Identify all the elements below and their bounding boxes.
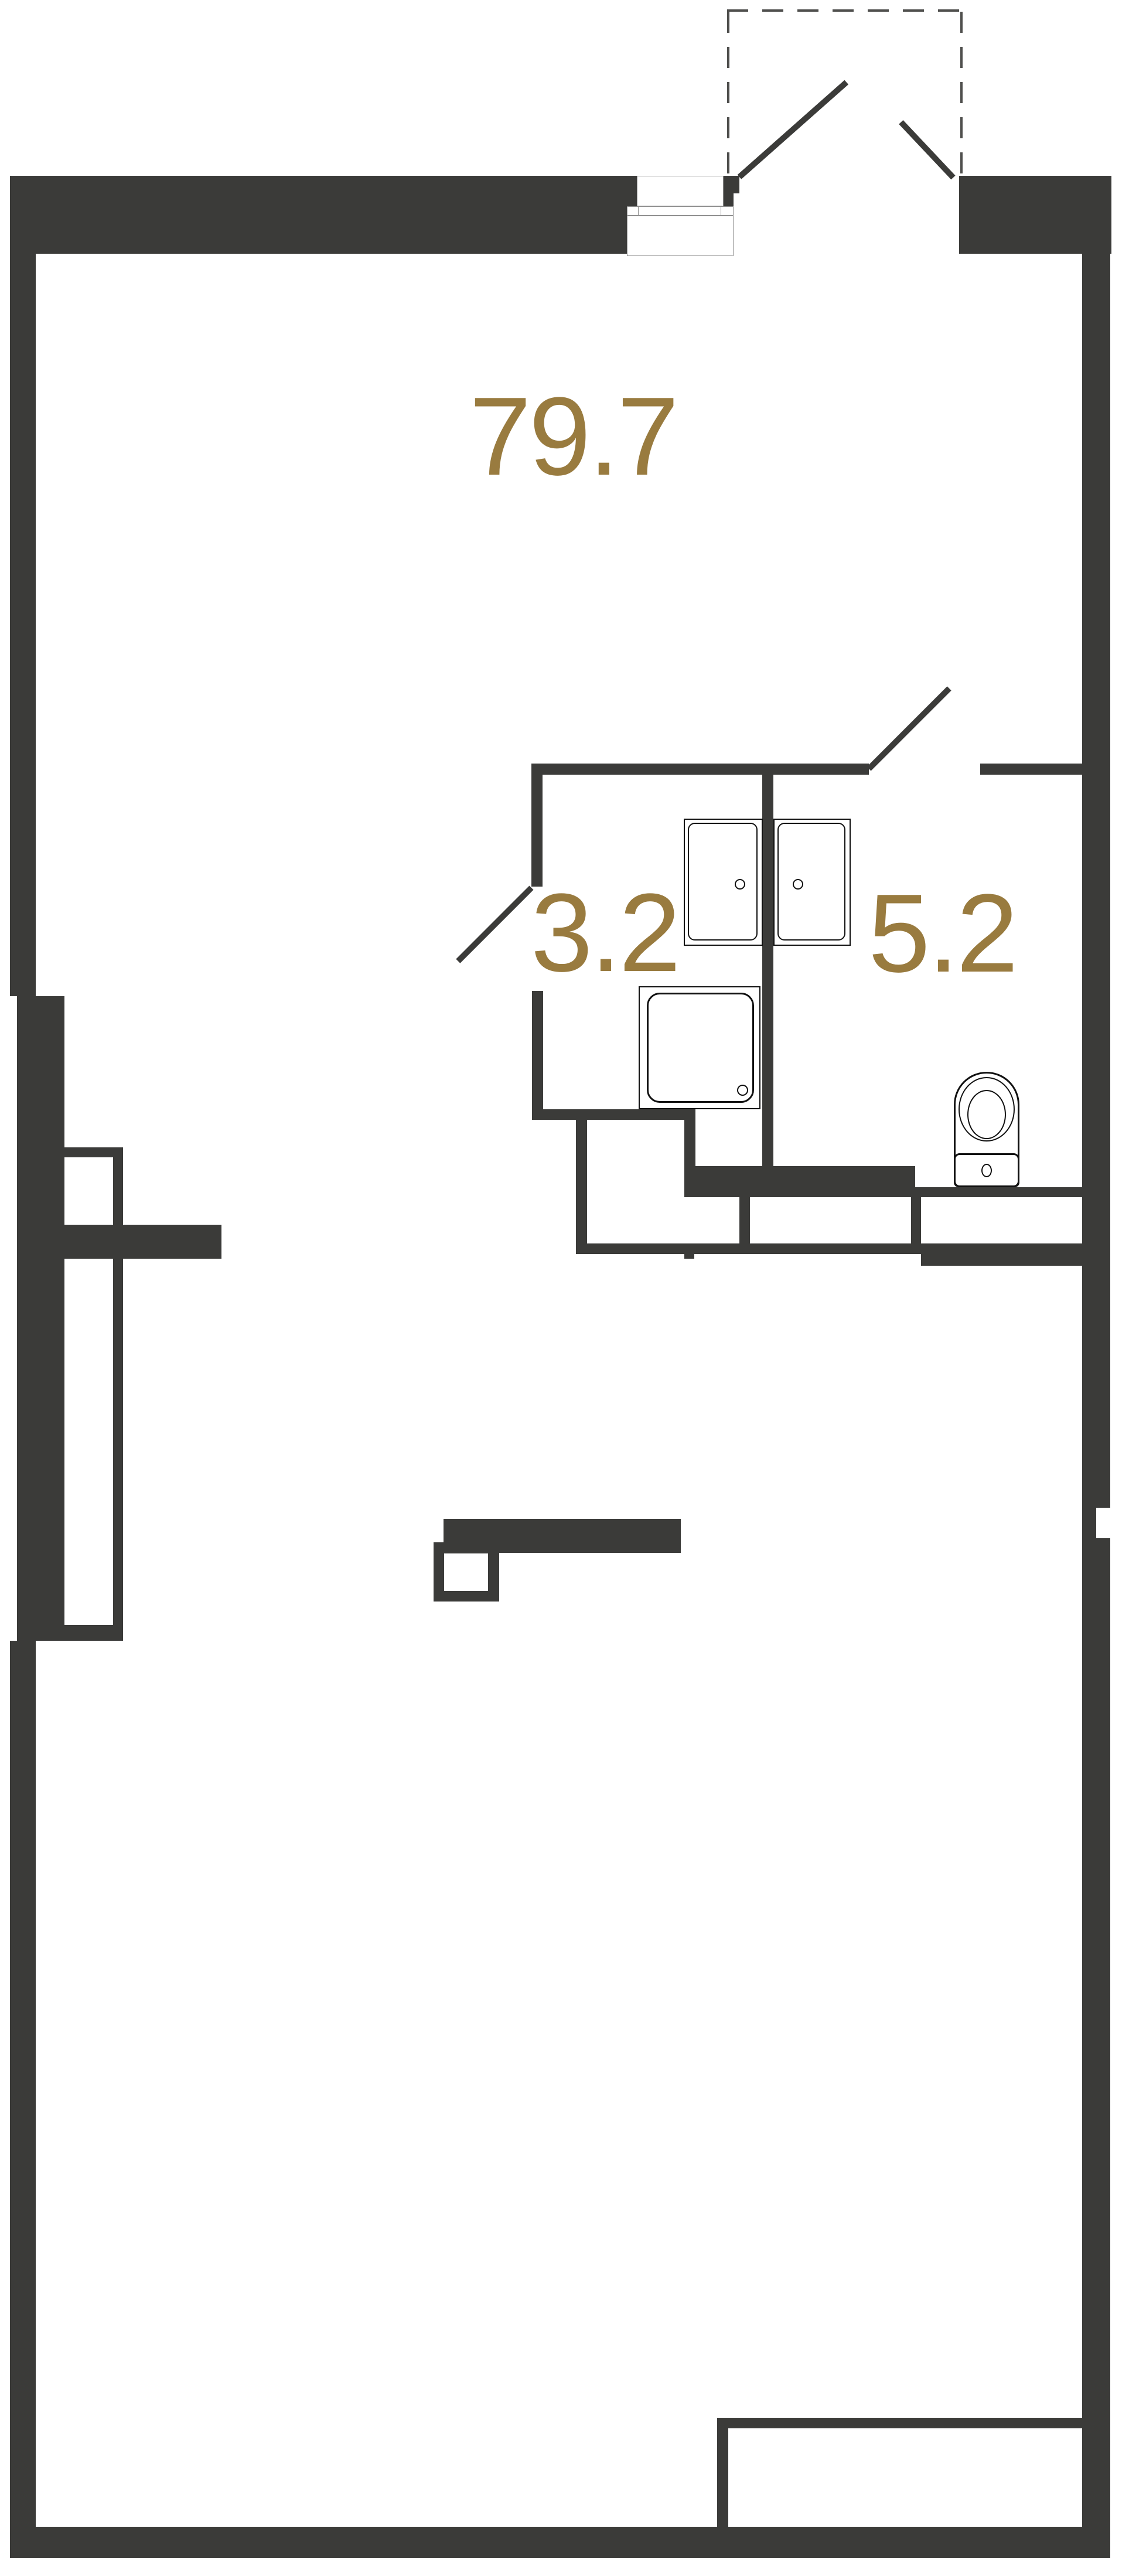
entry-door-panel [637,176,724,206]
entry-step [627,216,734,256]
wall-bottom [10,2527,1110,2558]
wall-left-upper [10,254,36,996]
toilet-rim-inner [967,1090,1006,1139]
vestibule-dashed-right [960,12,963,175]
wall-shower-left-lower [532,991,543,1109]
wall-shower-left-upper [531,775,543,887]
vestibule-dashed-top [727,9,964,12]
entry-door-swing-left [738,80,848,179]
bath-door-swing [867,686,951,771]
shower-door-swing [456,885,533,963]
wall-right [1082,254,1110,2558]
entry-sill-strip [627,206,734,216]
sink-left-basin [688,823,758,941]
wall-block-bottom-band [921,1254,1082,1266]
sink-right [773,819,851,946]
wall-conn-right [911,1197,921,1243]
bay-wall-upper [113,1157,123,1225]
area-label-main: 79.7 [469,381,677,492]
bay-slab [64,1225,221,1259]
shower-tray [639,986,760,1109]
bay-bottom [64,1625,123,1641]
bay-pier-top [64,1147,123,1157]
sill-tick-left [638,207,639,215]
toilet-tank [954,1153,1019,1187]
wall-bath-bar [684,1166,915,1197]
wall-niche-right [684,1120,695,1166]
entry-hinge-block-a [724,176,739,193]
wall-bath-top-right [980,764,1082,775]
wall-right-notch [1096,1508,1110,1538]
toilet [954,1072,1019,1187]
entry-hinge-block-b [724,193,734,206]
sink-left [684,819,763,946]
area-label-shower: 3.2 [531,877,678,989]
wall-central [762,775,773,1166]
wall-block-bottom [576,1243,1110,1254]
toilet-button-icon [981,1164,992,1177]
vestibule-dashed-left [727,12,729,175]
wall-top-right [959,176,1111,254]
wall-conn-left [739,1197,750,1243]
wall-nub [684,1254,694,1259]
area-label-bath: 5.2 [868,878,1016,989]
shower-drain-icon [737,1085,748,1096]
floor-plan: 79.7 3.2 5.2 [0,0,1129,2576]
sink-right-faucet-icon [793,879,803,890]
wall-niche-left [576,1120,587,1243]
wall-bath-top-left [531,764,869,775]
sink-right-basin [777,823,845,941]
wall-left-lower [10,1641,36,2527]
bay-wall-lower [113,1259,123,1625]
sill-tick-right [721,207,721,215]
entry-door-swing-right [899,120,955,179]
wall-left-middle [17,996,64,1641]
wall-under-toilet [915,1187,1082,1197]
threshold-bottom-left [717,2428,728,2527]
column-ring-hole [444,1553,488,1591]
wall-shower-bottom [532,1109,695,1120]
threshold-bottom-top [717,2418,1082,2428]
sink-left-faucet-icon [735,879,745,890]
wall-top-left [10,176,637,254]
